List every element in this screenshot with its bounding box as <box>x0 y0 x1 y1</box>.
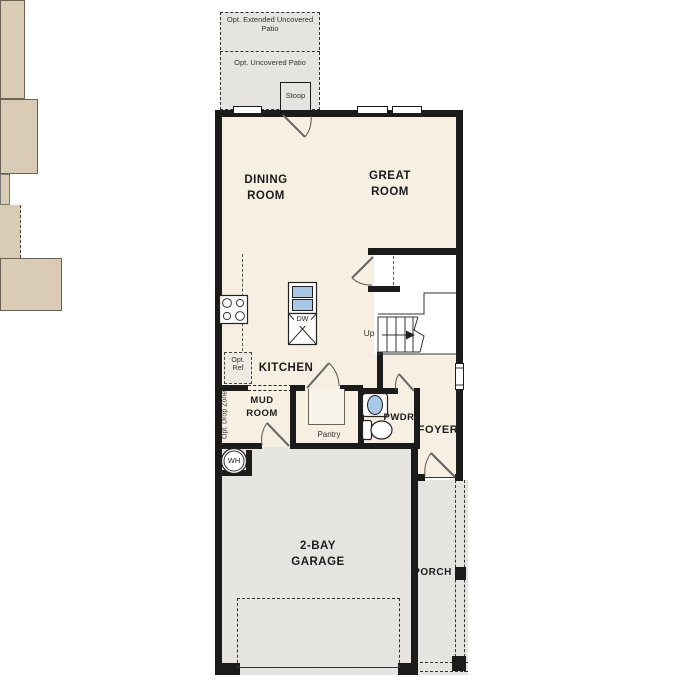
window-icon <box>455 363 464 390</box>
stair-closet-shelf <box>0 174 10 205</box>
patio-divider <box>220 51 320 52</box>
up-label: Up <box>361 329 377 339</box>
wall-pantry-east <box>358 388 364 447</box>
pwdr-label: PWDR <box>381 411 417 424</box>
porch-dashed-bottom2 <box>420 671 468 672</box>
patio-label: Opt. Uncovered Patio <box>222 59 318 68</box>
wall-mud-south <box>215 443 262 449</box>
cased-opening-mud <box>248 385 292 391</box>
porch-post-lower <box>452 656 466 671</box>
wall-frontdoor-right <box>455 474 463 481</box>
window-icon <box>357 106 388 114</box>
foyer-label: FOYER <box>417 423 459 438</box>
stairwell-floor <box>374 255 456 354</box>
kitchen-label: KITCHEN <box>250 360 322 376</box>
window-icon <box>392 106 422 114</box>
wall-wh-nook-south <box>222 470 252 476</box>
opt-ref-label: Opt. Ref <box>225 357 251 373</box>
stoop-label: Stoop <box>280 92 311 101</box>
wall-garage-east <box>411 447 418 663</box>
garage-label: 2-BAY GARAGE <box>278 538 358 570</box>
wall-stair-stub <box>377 352 383 390</box>
wall-pantry-pwdr-south <box>290 443 420 449</box>
wall-closet-south <box>368 286 400 292</box>
dining-room-label: DINING ROOM <box>226 172 306 204</box>
floor-plan: Opt. Extended Uncovered Patio Opt. Uncov… <box>0 0 687 687</box>
porch-label: PORCH <box>410 566 455 580</box>
patio-extended-label: Opt. Extended Uncovered Patio <box>222 16 318 33</box>
kitchen-counter <box>0 0 25 99</box>
stair-closet-shelf-edge <box>393 256 394 285</box>
kitchen-island <box>0 99 38 174</box>
wall-greatroom-south <box>368 248 456 255</box>
opt-drop-zone-text: Opt. Drop Zone <box>222 391 229 439</box>
pantry-shelf-notch <box>308 389 345 425</box>
kitchen-counter-edge <box>242 254 243 351</box>
pantry-shelf <box>0 258 62 311</box>
great-room-label: GREAT ROOM <box>350 168 430 200</box>
window-icon <box>233 106 262 114</box>
wall-pantry-west <box>290 385 296 447</box>
wh-label: WH <box>226 457 242 466</box>
pantry-label: Pantry <box>303 430 355 439</box>
wall-garage-south-right <box>398 663 418 675</box>
dw-label: DW <box>295 316 310 324</box>
garage-door-outline <box>237 598 400 668</box>
mud-room-label: MUD ROOM <box>238 394 286 421</box>
drop-zone-counter <box>0 205 21 258</box>
wall-right-upper <box>456 110 463 363</box>
foyer-floor <box>418 447 456 477</box>
porch-post-upper <box>455 567 466 580</box>
